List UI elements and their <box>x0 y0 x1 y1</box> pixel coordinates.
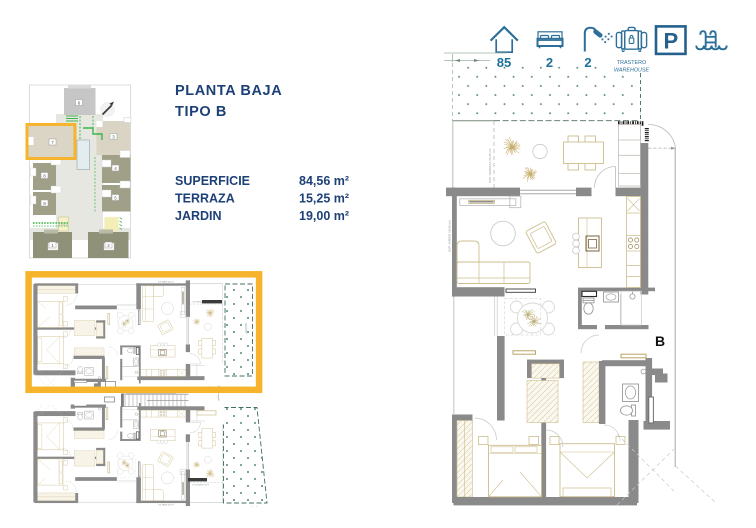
svg-text:TIPO B: TIPO B <box>175 104 227 120</box>
svg-text:15,25 m²: 15,25 m² <box>299 192 349 206</box>
svg-text:JARDIN: JARDIN <box>175 209 222 223</box>
svg-text:TRASTERO: TRASTERO <box>617 60 646 66</box>
svg-text:P: P <box>663 29 678 54</box>
svg-text:SUP. JARDIN 19,00 m2: SUP. JARDIN 19,00 m2 <box>448 220 452 252</box>
svg-text:19,00 m²: 19,00 m² <box>299 209 349 223</box>
svg-text:PLANTA BAJA: PLANTA BAJA <box>175 83 282 99</box>
svg-text:TERRAZA: TERRAZA <box>175 192 235 206</box>
svg-text:84,56 m²: 84,56 m² <box>299 174 349 188</box>
svg-text:SUP. TERRAZA 15,25 m2: SUP. TERRAZA 15,25 m2 <box>488 148 492 183</box>
svg-text:B: B <box>655 333 665 349</box>
svg-text:JARDIN: JARDIN <box>244 323 248 334</box>
svg-text:SUPERFICIE: SUPERFICIE <box>175 174 250 188</box>
